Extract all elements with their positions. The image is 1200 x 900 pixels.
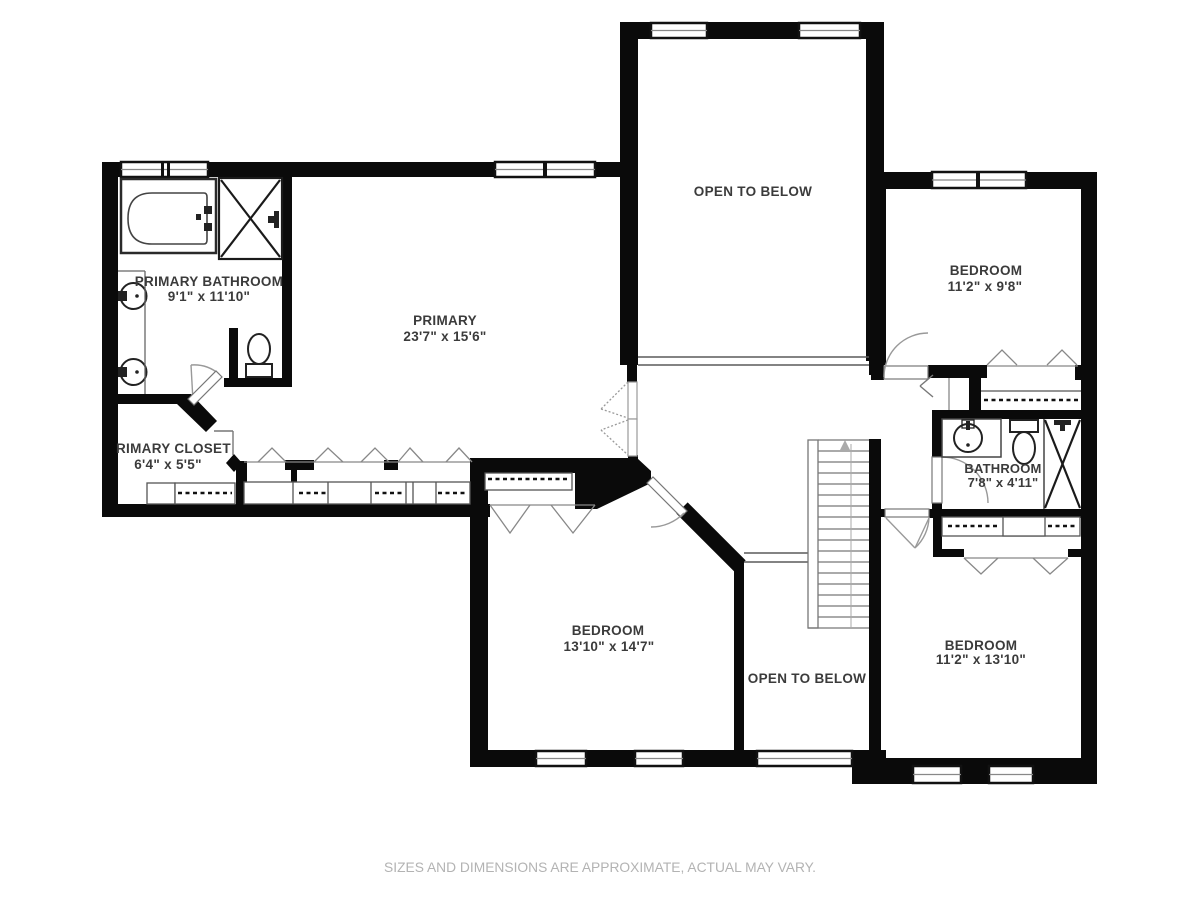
svg-text:PRIMARY: PRIMARY — [413, 313, 477, 328]
svg-text:BEDROOM: BEDROOM — [945, 638, 1018, 653]
svg-text:BATHROOM: BATHROOM — [964, 461, 1041, 476]
svg-text:13'10" x 14'7": 13'10" x 14'7" — [564, 639, 655, 654]
svg-text:SIZES AND DIMENSIONS ARE APPRO: SIZES AND DIMENSIONS ARE APPROXIMATE, AC… — [384, 860, 816, 875]
svg-text:PRIMARY BATHROOM: PRIMARY BATHROOM — [135, 274, 284, 289]
svg-text:OPEN TO BELOW: OPEN TO BELOW — [694, 184, 812, 199]
svg-text:OPEN TO BELOW: OPEN TO BELOW — [748, 671, 866, 686]
svg-text:7'8" x 4'11": 7'8" x 4'11" — [968, 475, 1039, 490]
svg-text:6'4" x 5'5": 6'4" x 5'5" — [134, 457, 202, 472]
svg-text:BEDROOM: BEDROOM — [572, 623, 645, 638]
svg-text:11'2" x 9'8": 11'2" x 9'8" — [948, 279, 1023, 294]
svg-text:11'2" x 13'10": 11'2" x 13'10" — [936, 652, 1026, 667]
svg-text:RIMARY CLOSET: RIMARY CLOSET — [116, 441, 231, 456]
svg-text:BEDROOM: BEDROOM — [950, 263, 1023, 278]
svg-text:9'1" x 11'10": 9'1" x 11'10" — [168, 289, 250, 304]
svg-text:23'7" x 15'6": 23'7" x 15'6" — [403, 329, 486, 344]
